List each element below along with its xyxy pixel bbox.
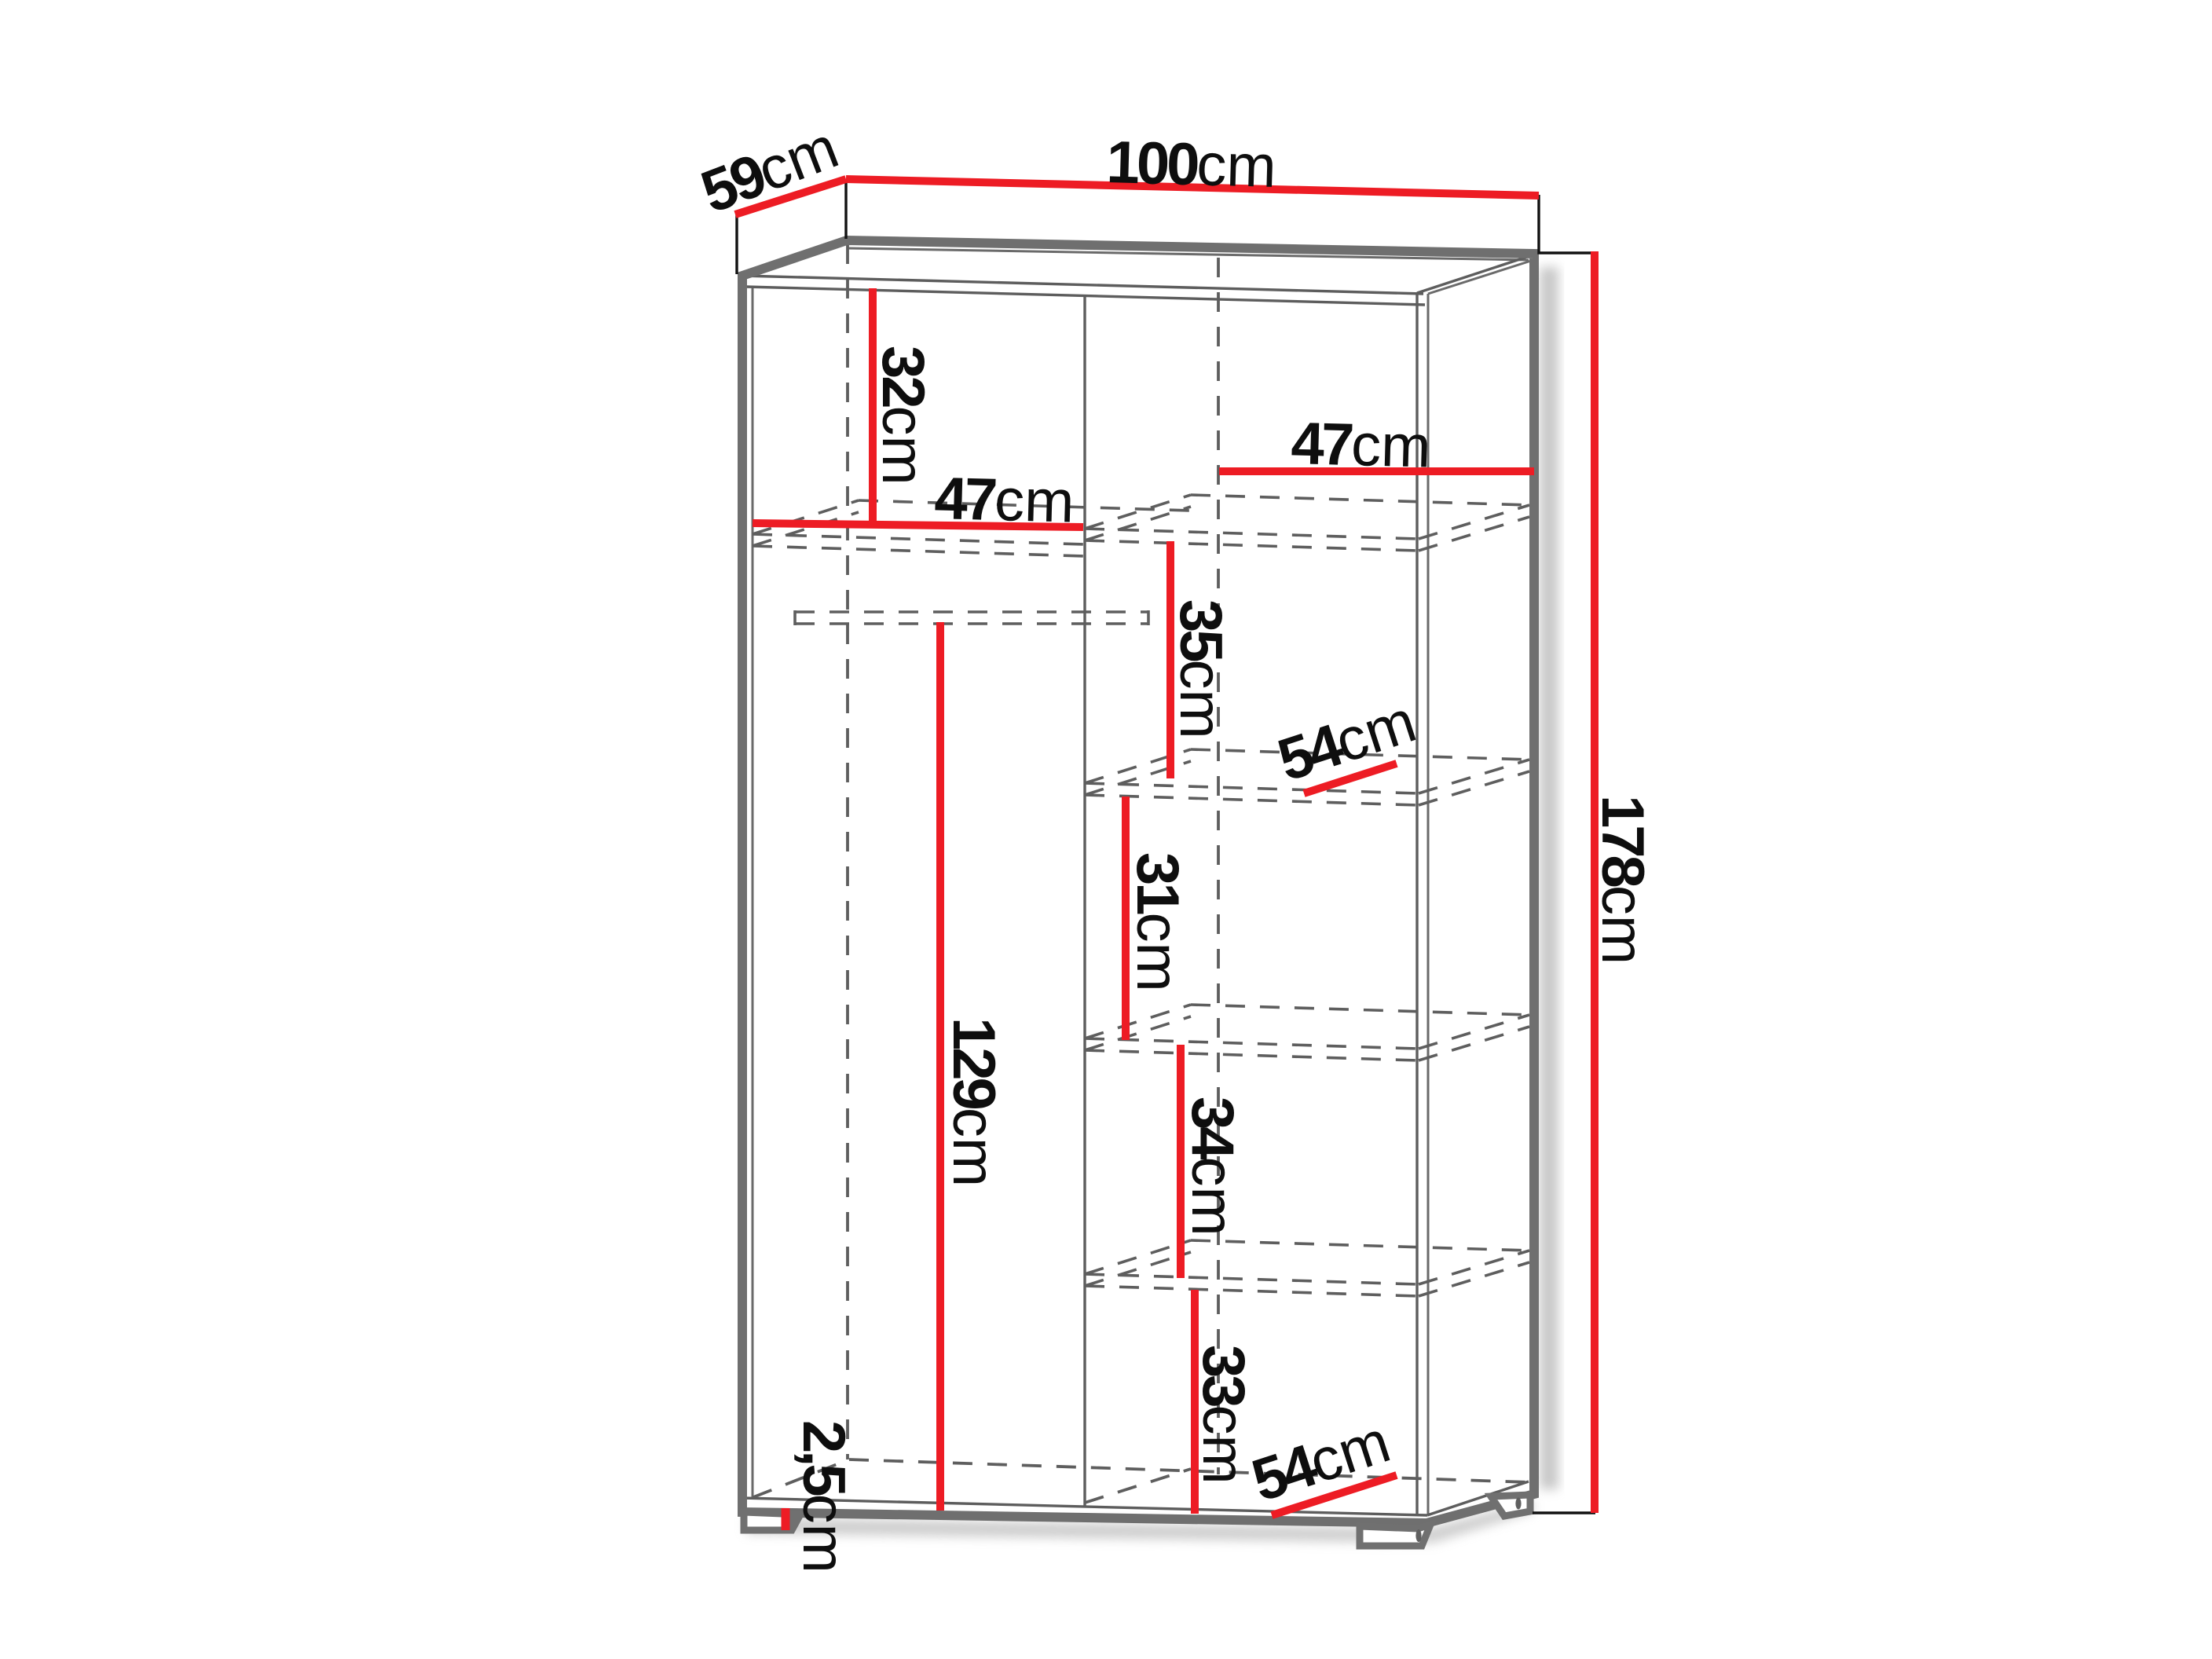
svg-text:33cm: 33cm — [1190, 1345, 1257, 1485]
svg-text:100cm: 100cm — [1106, 129, 1277, 200]
svg-text:31cm: 31cm — [1124, 852, 1191, 992]
svg-text:47cm: 47cm — [934, 465, 1075, 536]
svg-text:47cm: 47cm — [1291, 410, 1432, 481]
svg-text:129cm: 129cm — [940, 1017, 1007, 1187]
svg-text:2,5cm: 2,5cm — [790, 1420, 857, 1573]
svg-text:35cm: 35cm — [1167, 599, 1234, 739]
svg-text:32cm: 32cm — [870, 346, 936, 485]
svg-text:34cm: 34cm — [1179, 1097, 1246, 1236]
svg-text:178cm: 178cm — [1589, 795, 1656, 965]
